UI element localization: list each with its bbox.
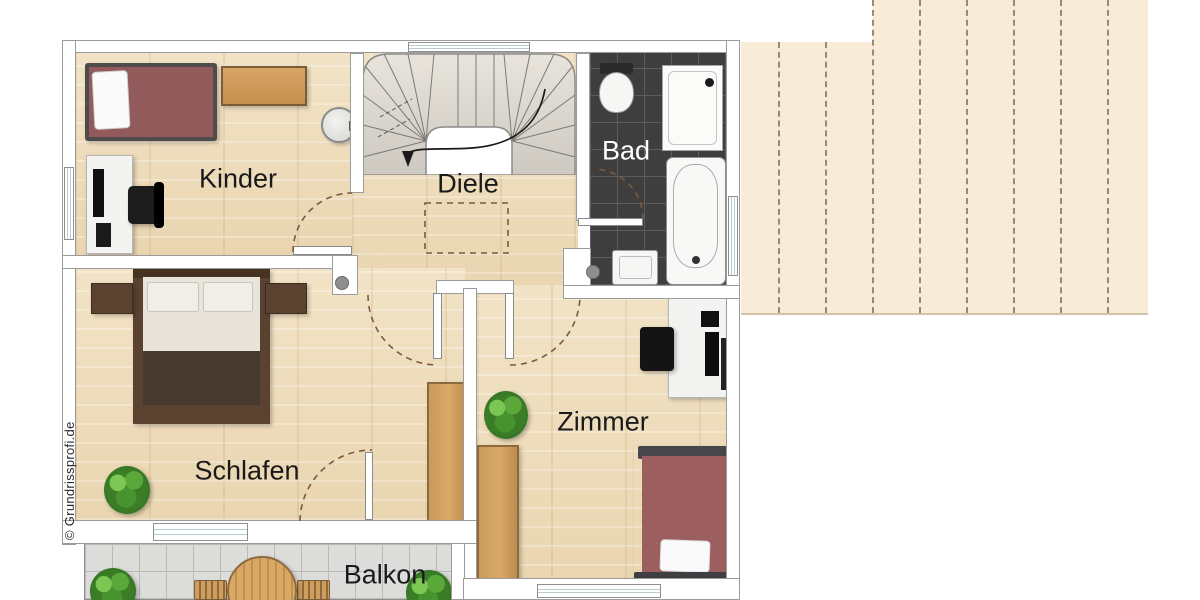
bath-sink xyxy=(612,250,658,285)
shower-drain xyxy=(705,78,714,87)
roof-slope-line xyxy=(1107,0,1109,313)
door-bad xyxy=(578,218,643,226)
nightstand-left xyxy=(91,283,133,314)
watermark-text: © Grundrissprofi.de xyxy=(62,388,79,540)
label-bad: Bad xyxy=(602,136,650,167)
door-balkon xyxy=(365,452,373,520)
floor-plan: Kinder Diele Bad Schlafen Zimmer Balkon … xyxy=(0,0,1200,600)
wall-schlafen-door-jamb xyxy=(332,255,358,295)
staircase xyxy=(362,53,576,175)
wall-schlafen-bottom xyxy=(62,520,477,544)
zimmer-bed xyxy=(634,446,734,586)
double-bed xyxy=(133,269,270,424)
label-kinder: Kinder xyxy=(199,164,277,195)
wall-kinder-bottom xyxy=(62,255,358,269)
label-balkon: Balkon xyxy=(344,560,427,591)
roof-slope-line xyxy=(919,0,921,313)
zimmer-wardrobe xyxy=(477,445,519,586)
roof-slope-line xyxy=(778,42,780,313)
kinder-desk-pc xyxy=(96,223,111,247)
shower xyxy=(662,65,723,151)
label-schlafen: Schlafen xyxy=(194,456,299,487)
label-zimmer: Zimmer xyxy=(557,407,648,438)
window-bad-right xyxy=(728,196,738,276)
roof-slope-line xyxy=(872,0,874,313)
zimmer-desk-monitor xyxy=(705,332,719,376)
roof-slope-line xyxy=(1060,0,1062,313)
nightstand-right xyxy=(265,283,307,314)
roof-surface-main xyxy=(741,42,1148,315)
balkon-chair-right xyxy=(297,580,330,600)
zimmer-bed-pillow xyxy=(659,539,710,573)
wall-outer-right xyxy=(726,40,740,600)
label-diele: Diele xyxy=(437,169,499,200)
double-bed-pillow-left xyxy=(147,282,199,312)
bathtub-basin xyxy=(673,164,718,268)
kinder-bed-pillow xyxy=(92,70,131,130)
wall-kinder-stair xyxy=(350,53,364,193)
schlafen-plant xyxy=(104,466,150,514)
bathtub xyxy=(666,157,726,285)
toilet-bowl xyxy=(599,72,634,113)
bathtub-drain xyxy=(692,256,700,264)
balkon-chair-left xyxy=(194,580,227,600)
door-zimmer xyxy=(505,293,514,359)
kinder-desk-monitor xyxy=(93,169,104,217)
door-schlafen xyxy=(433,293,442,359)
double-bed-blanket xyxy=(143,351,260,405)
roof-slope-line xyxy=(1013,0,1015,313)
zimmer-plant xyxy=(484,391,528,439)
window-kinder-left xyxy=(64,167,74,240)
window-zimmer-bottom xyxy=(537,584,661,598)
window-balkon-door xyxy=(153,523,248,541)
bath-sink-basin xyxy=(619,256,652,279)
schlafen-wardrobe xyxy=(427,382,467,522)
window-stair-top xyxy=(408,42,530,52)
zimmer-desk xyxy=(668,295,728,398)
wall-schlafen-zimmer-divider xyxy=(463,288,477,600)
kinder-bed xyxy=(85,63,217,141)
roof-slope-line xyxy=(966,0,968,313)
wall-outer-top xyxy=(62,40,740,53)
wall-zimmer-top xyxy=(563,285,740,299)
kinder-office-chair-back xyxy=(154,182,164,228)
kinder-sideboard xyxy=(221,66,307,106)
double-bed-pillow-right xyxy=(203,282,253,312)
zimmer-desk-speaker xyxy=(701,311,719,327)
door-kinder xyxy=(293,246,352,255)
toilet xyxy=(598,63,635,113)
kinder-desk xyxy=(86,155,133,254)
roof-slope-line xyxy=(825,42,827,313)
zimmer-office-chair xyxy=(640,327,674,371)
wall-stair-bad xyxy=(576,53,590,221)
